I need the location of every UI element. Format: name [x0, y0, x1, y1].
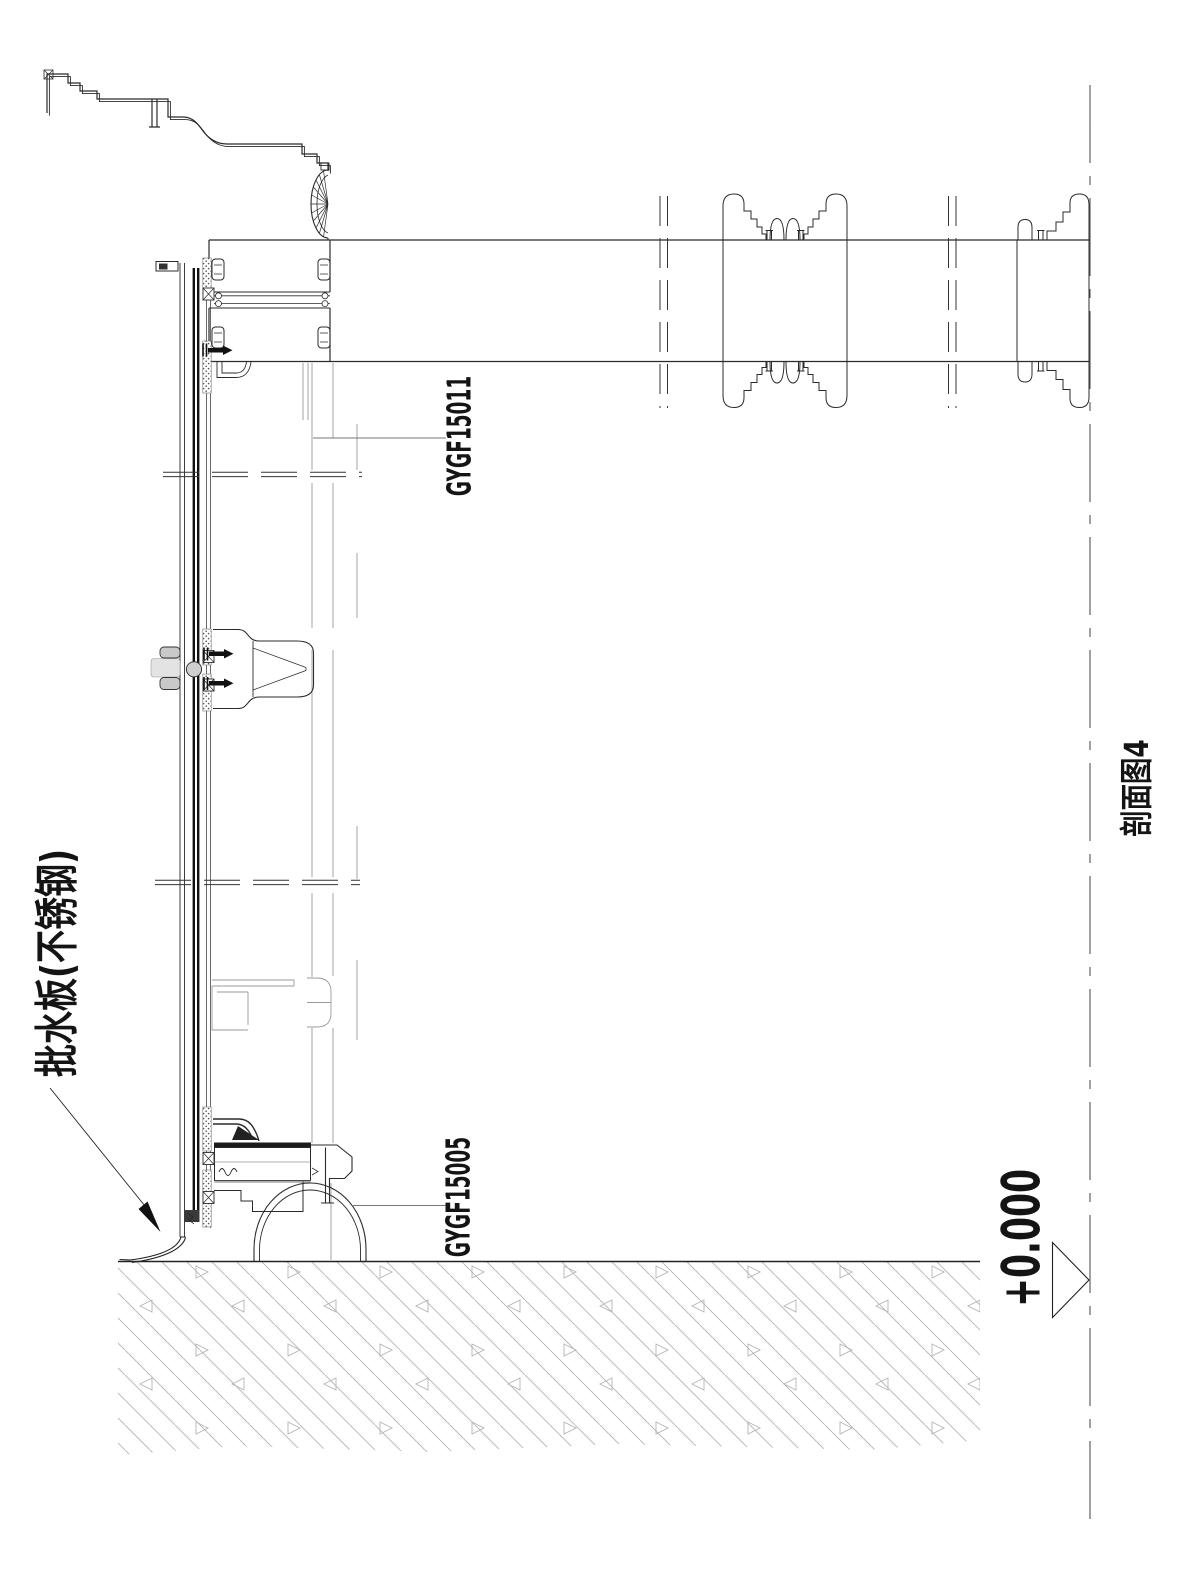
curtain-wall-mullion [156, 258, 211, 1237]
transom-rails [209, 240, 1089, 362]
profile-code-top-label: GYGF15011 [440, 376, 479, 496]
mullion-plan-section-2 [1017, 194, 1089, 408]
flashing-annotation: 批水板(不锈钢) [21, 849, 85, 1077]
section-drawing-linework [0, 0, 1200, 1590]
level-marker-triangle [1053, 1243, 1090, 1318]
profile-code-bottom-label: GYGF15005 [439, 1137, 478, 1257]
top-rail-boxes [209, 240, 330, 378]
background-channel [212, 978, 331, 1030]
ground-hatch [118, 1262, 980, 1456]
mid-connector [151, 630, 314, 709]
fan-ornament [311, 163, 329, 240]
section-title: 剖面图4 [1110, 739, 1158, 837]
dome-anchor [254, 1183, 366, 1261]
drip-flashing [120, 1213, 195, 1263]
mullion-plan-section-1 [723, 194, 847, 408]
level-mark-label: +0.000 [992, 1169, 1053, 1307]
seal-symbols [203, 288, 214, 1204]
leader-lines [50, 438, 446, 1232]
background-sight-lines [303, 363, 357, 1260]
cornice-profile [44, 70, 330, 174]
insulation-strips [203, 258, 211, 1227]
cad-canvas: 批水板(不锈钢) GYGF15011 GYGF15005 剖面图4 +0.000 [0, 0, 1200, 1590]
break-lines [155, 196, 956, 885]
